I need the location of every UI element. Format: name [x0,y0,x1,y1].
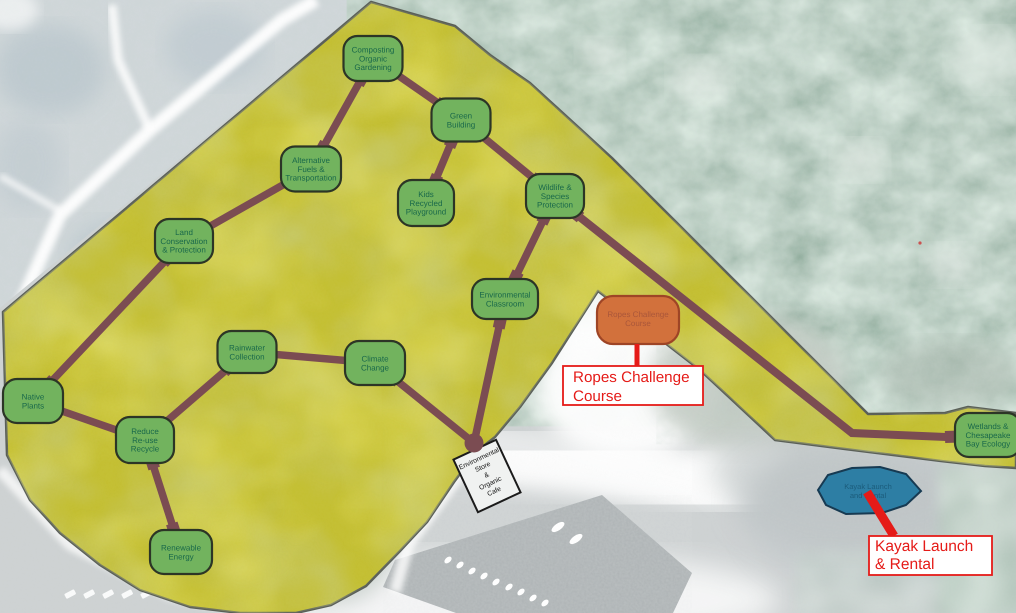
svg-text:Building: Building [447,120,475,129]
svg-text:Transportation: Transportation [285,174,336,183]
svg-text:Course: Course [625,319,651,328]
svg-text:Gardening: Gardening [354,63,391,72]
svg-text:Kids: Kids [418,190,434,199]
svg-text:Conservation: Conservation [160,237,207,246]
svg-text:Native: Native [22,393,45,402]
svg-text:Change: Change [361,363,390,372]
svg-text:& Rental: & Rental [875,556,934,573]
svg-text:Fuels &: Fuels & [297,165,325,174]
svg-text:Bay Ecology: Bay Ecology [966,440,1010,449]
svg-text:Wetlands &: Wetlands & [968,422,1009,431]
svg-text:Kayak Launch: Kayak Launch [844,482,892,491]
svg-text:Re-use: Re-use [132,436,158,445]
svg-text:Playground: Playground [406,208,446,217]
svg-text:Species: Species [541,192,569,201]
svg-text:Protection: Protection [537,201,573,210]
svg-text:Organic: Organic [359,54,387,63]
svg-text:Climate: Climate [361,355,389,364]
svg-text:Reduce: Reduce [131,427,159,436]
svg-text:Chesapeake: Chesapeake [966,431,1011,440]
svg-text:Wildlife &: Wildlife & [538,183,572,192]
svg-text:Ropes Challenge: Ropes Challenge [607,310,669,319]
svg-text:Recycle: Recycle [131,445,160,454]
svg-text:Energy: Energy [168,552,193,561]
svg-text:Recycled: Recycled [410,199,443,208]
svg-text:Collection: Collection [229,352,264,361]
svg-text:Environmental: Environmental [479,291,530,300]
svg-text:Renewable: Renewable [161,544,202,553]
svg-text:Ropes Challenge: Ropes Challenge [573,369,690,386]
svg-text:Classroom: Classroom [486,299,525,308]
svg-text:Alternative: Alternative [292,156,330,165]
svg-text:Green: Green [450,112,472,121]
svg-text:Kayak Launch: Kayak Launch [875,538,973,555]
svg-text:Course: Course [573,388,622,405]
svg-text:Composting: Composting [352,46,395,55]
svg-text:& Protection: & Protection [162,246,206,255]
svg-text:Rainwater: Rainwater [229,344,265,353]
svg-text:Plants: Plants [22,401,44,410]
svg-text:Land: Land [175,228,193,237]
